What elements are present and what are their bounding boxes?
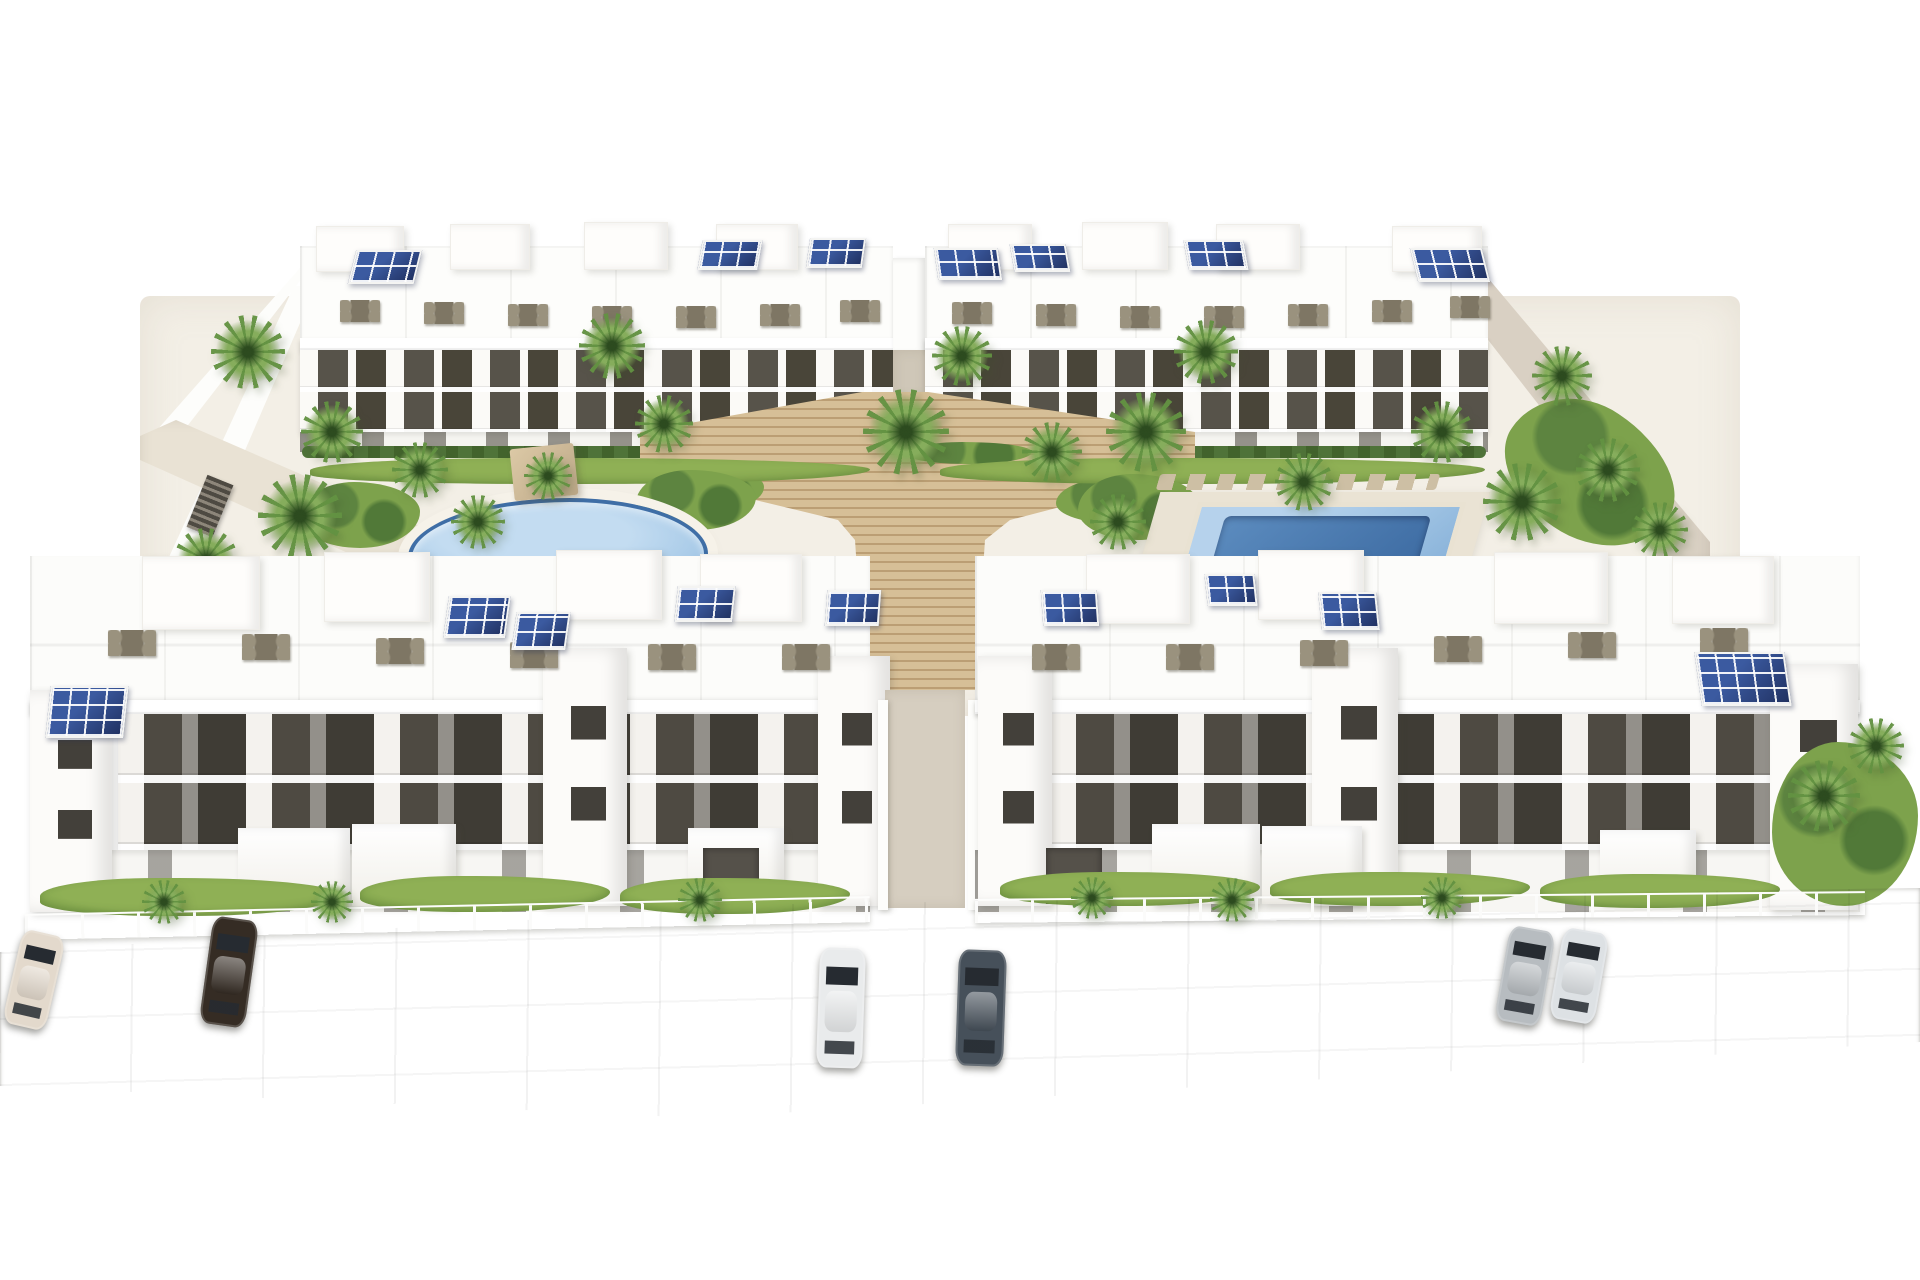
roof-terrace-furniture <box>1032 644 1080 670</box>
palm-tree <box>211 315 285 389</box>
roof-terrace-furniture <box>760 304 800 326</box>
palm-tree <box>524 452 572 500</box>
front-left-parapet <box>30 700 870 714</box>
roof-terrace-furniture <box>782 644 830 670</box>
palm-tree <box>1788 760 1860 832</box>
solar-array <box>1010 244 1071 272</box>
roof-terrace-furniture <box>376 638 424 664</box>
central-pillar-wall <box>893 258 927 354</box>
roof-terrace-furniture <box>1166 644 1214 670</box>
roof-terrace-furniture <box>340 300 380 322</box>
solar-array <box>674 586 736 622</box>
roof-terrace-furniture <box>508 304 548 326</box>
roof-terrace-furniture <box>952 302 992 324</box>
solar-array <box>443 596 511 638</box>
stair-tower <box>543 648 627 906</box>
roof-bulkhead <box>142 556 260 630</box>
roof-terrace-furniture <box>108 630 156 656</box>
roof-terrace-furniture <box>676 306 716 328</box>
palm-tree <box>392 442 448 498</box>
palm-tree <box>1210 878 1254 922</box>
roof-bulkhead <box>584 222 668 270</box>
car-gray-center <box>955 949 1007 1067</box>
solar-array <box>45 686 128 738</box>
palm-tree <box>635 395 693 453</box>
palm-tree <box>1421 877 1463 919</box>
palm-tree <box>1532 346 1592 406</box>
palm-tree <box>301 401 363 463</box>
central-walkway-wall <box>878 700 888 910</box>
solar-array <box>348 250 422 284</box>
roof-bulkhead <box>556 550 662 620</box>
roof-terrace-furniture <box>242 634 290 660</box>
solar-array <box>806 238 866 268</box>
palm-tree <box>1483 463 1561 541</box>
roof-terrace-furniture <box>1434 636 1482 662</box>
palm-tree <box>1576 438 1640 502</box>
solar-array <box>697 240 762 270</box>
roof-terrace-furniture <box>1372 300 1412 322</box>
roof-bulkhead <box>450 224 530 270</box>
palm-tree <box>579 313 645 379</box>
solar-array <box>1318 592 1380 630</box>
palm-tree <box>258 474 342 558</box>
roof-terrace-furniture <box>1300 640 1348 666</box>
solar-array <box>1183 240 1248 270</box>
solar-array <box>934 248 1002 280</box>
roof-terrace-furniture <box>1036 304 1076 326</box>
roof-terrace-furniture <box>1568 632 1616 658</box>
roof-terrace-furniture <box>1288 304 1328 326</box>
central-walkway <box>885 690 965 908</box>
solar-array <box>511 612 570 650</box>
palm-tree <box>311 881 353 923</box>
solar-array <box>1694 652 1792 706</box>
palm-tree <box>1174 320 1238 384</box>
palm-tree <box>1275 453 1333 511</box>
roof-terrace-furniture <box>648 644 696 670</box>
solar-array <box>1410 248 1490 282</box>
roof-terrace-furniture <box>1120 306 1160 328</box>
roof-terrace-furniture <box>1450 296 1490 318</box>
scene <box>0 0 1920 1280</box>
palm-tree <box>863 389 949 475</box>
palm-tree <box>1848 718 1904 774</box>
palm-tree <box>1106 392 1186 472</box>
car-white-center <box>816 947 866 1069</box>
palm-tree <box>451 495 505 549</box>
roof-terrace-furniture <box>424 302 464 324</box>
roof-bulkhead <box>324 552 430 622</box>
roof-bulkhead <box>1082 222 1168 270</box>
palm-tree <box>678 878 722 922</box>
solar-array <box>1041 590 1100 626</box>
solar-array <box>1204 574 1257 606</box>
palm-tree <box>1632 502 1688 558</box>
roof-bulkhead <box>1672 556 1774 624</box>
palm-tree <box>932 326 992 386</box>
palm-tree <box>1411 401 1473 463</box>
palm-tree <box>1090 494 1146 550</box>
solar-array <box>825 590 882 626</box>
roof-bulkhead <box>1086 554 1190 624</box>
architectural-render <box>0 0 1920 1280</box>
roof-terrace-furniture <box>1700 628 1748 654</box>
stair-tower <box>978 656 1052 906</box>
palm-tree <box>1071 877 1113 919</box>
palm-tree <box>1022 422 1082 482</box>
roof-bulkhead <box>1494 552 1608 624</box>
roof-terrace-furniture <box>840 300 880 322</box>
palm-tree <box>142 880 186 924</box>
